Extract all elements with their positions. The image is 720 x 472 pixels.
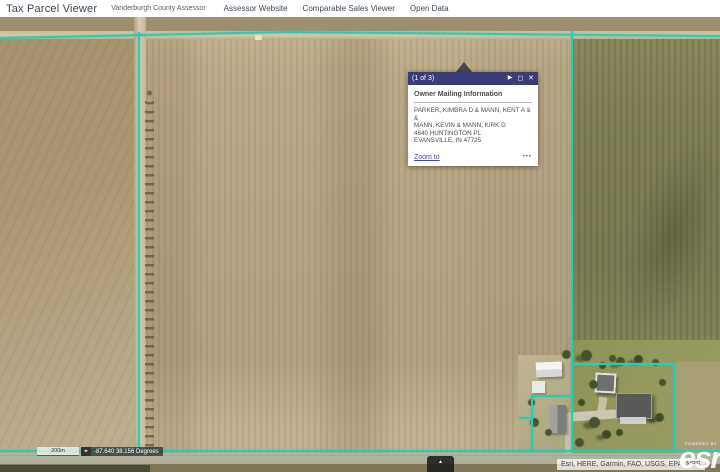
popup-footer: Zoom to ••• [414,154,532,161]
treeline-left-road [145,87,154,453]
zoom-to-link[interactable]: Zoom to [414,154,523,161]
attribution-expand-button[interactable]: ▲ [427,456,454,472]
link-comparable-sales-viewer[interactable]: Comparable Sales Viewer [303,4,395,13]
popup-pager: (1 of 3) [412,75,503,82]
app-header: Tax Parcel Viewer Vanderburgh County Ass… [0,0,720,17]
popup-title: Owner Mailing Information [414,91,532,103]
popup-callout-arrow [456,62,472,72]
owner-info-popup: (1 of 3) ▶ ◻ ✕ Owner Mailing Information… [408,72,538,166]
map-canvas[interactable]: (1 of 3) ▶ ◻ ✕ Owner Mailing Information… [0,17,720,472]
esri-watermark[interactable]: POWERED BY esri [679,441,720,472]
parcel-line [519,417,532,419]
barn-building [536,362,563,378]
page-title: Tax Parcel Viewer [6,3,97,15]
owner-line: 4640 HUNTINGTON PL [414,130,532,138]
field-patch-top [0,17,720,32]
owner-line: EVANSVILLE, IN 47725 [414,137,532,145]
tax-parcel-viewer-app: Tax Parcel Viewer Vanderburgh County Ass… [0,0,720,472]
popup-menu-icon[interactable]: ••• [523,154,532,160]
owner-line: PARKER, KIMBRA D & MANN, KENT A & & [414,107,532,122]
close-icon[interactable]: ✕ [528,72,534,85]
esri-logo: esri [679,440,720,472]
parcel-line [673,363,675,452]
shed-building [532,381,545,393]
county-subtitle: Vanderburgh County Assessor [111,5,205,12]
field-patch-green-crop [572,17,720,363]
parcel-line [531,395,533,452]
owner-line: MANN, KEVIN & MANN, KIRK D [414,122,532,130]
link-assessor-website[interactable]: Assessor Website [224,4,288,13]
field-edge-bottom-dark [0,465,150,472]
popup-header[interactable]: (1 of 3) ▶ ◻ ✕ [408,72,538,85]
dock-icon[interactable]: ◻ [517,72,523,85]
coordinates-readout: -87.640 38.156 Degrees [94,449,159,455]
scale-bar: 200m [37,447,79,456]
next-feature-icon[interactable]: ▶ [508,72,513,85]
link-open-data[interactable]: Open Data [410,4,449,13]
small-structure [255,35,262,40]
field-patch-left [0,17,140,453]
trees [0,17,7,24]
crosshair-icon: ⌖ [81,447,91,456]
parcel-line [571,31,573,452]
house-building [549,405,566,433]
house-building [594,372,616,393]
coordinates-widget: ⌖ -87.640 38.156 Degrees [81,447,163,456]
popup-body: Owner Mailing Information PARKER, KIMBRA… [408,85,538,166]
header-nav: Assessor Website Comparable Sales Viewer… [224,4,449,13]
house-building [616,393,652,419]
parcel-line [571,363,675,365]
parcel-line [138,32,140,452]
parcel-line [531,395,573,397]
